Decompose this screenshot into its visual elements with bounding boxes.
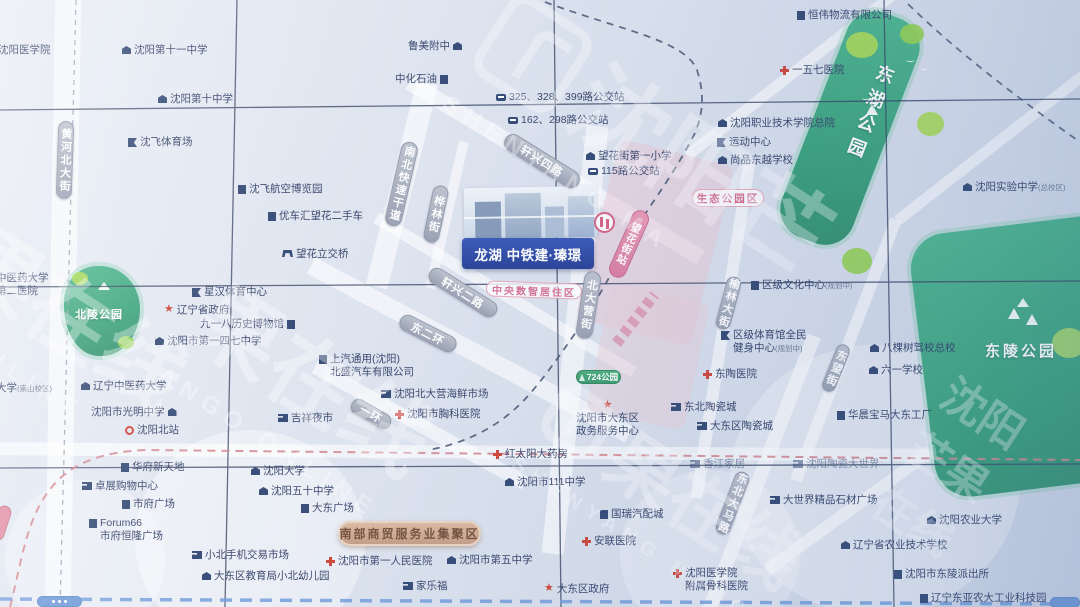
pine-tree-icon xyxy=(1026,314,1038,325)
school-icon xyxy=(447,556,456,564)
poi-label: 鲁美附中 xyxy=(408,40,450,53)
building-icon xyxy=(238,185,246,194)
pine-tree-icon xyxy=(1017,298,1029,307)
poi-label: 沈阳医学院 xyxy=(0,44,51,57)
dongling-park-label: 东陵公园 xyxy=(985,340,1057,361)
school-icon xyxy=(453,42,462,50)
map-poi: 优车汇望花二手车 xyxy=(268,210,363,223)
building-icon xyxy=(121,463,129,472)
map-poi: ★大东区政府 xyxy=(544,583,609,596)
watermark: 果在线 MANGO ONLINE xyxy=(0,140,214,463)
park-foliage xyxy=(846,32,878,58)
hospital-icon xyxy=(582,537,591,546)
school-icon xyxy=(158,95,167,103)
render-building xyxy=(545,207,564,238)
bird-icon xyxy=(920,66,927,70)
school-icon xyxy=(168,408,177,416)
road-ne-diagonal-2 xyxy=(894,56,1080,225)
map-poi: 沈阳医学院 xyxy=(0,44,51,57)
poi-label: 望花立交桥 xyxy=(296,248,349,261)
map-poi: 区级体育馆全民健身中心(规划中) xyxy=(721,329,807,355)
map-poi: 鲁美附中 xyxy=(408,40,462,53)
poi-label: 优车汇望花二手车 xyxy=(279,210,363,223)
poi-label: 沈阳第十一中学 xyxy=(134,44,208,57)
render-building xyxy=(474,202,501,239)
project-name-badge: 龙湖 中铁建·瑧璟 xyxy=(462,238,594,269)
pine-tree-icon xyxy=(1008,308,1020,319)
market-icon xyxy=(403,582,413,590)
poi-label: 沈阳第十中学 xyxy=(170,93,233,106)
poi-label: 沈飞体育场 xyxy=(140,136,193,149)
park-foliage xyxy=(900,24,924,44)
poi-label-suffix: (规划中) xyxy=(775,344,803,353)
poi-label-suffix: (规划中) xyxy=(825,281,853,290)
map-poi: 沈阳市第五中学 xyxy=(447,554,533,567)
poi-label: 家乐福 xyxy=(416,580,448,593)
building-icon xyxy=(440,75,448,84)
poi-label: 区级体育馆全民 xyxy=(733,329,807,342)
poi-label: 沈阳实验中学(总校区) xyxy=(975,181,1066,194)
zone-central-residential: 中央数智居住区 xyxy=(486,280,582,299)
poi-label: 沈飞航空博览园 xyxy=(249,183,323,196)
poi-label: 健身中心(规划中) xyxy=(733,342,807,355)
map-poi: 沈阳实验中学(总校区) xyxy=(963,181,1066,194)
illegible-road-label xyxy=(1050,597,1080,607)
map-board-photo: 东湖公园 东陵公园 北陵公园 生态公园区 中央数智居住区 南部商贸服务业集聚区 … xyxy=(0,0,1080,607)
sport-icon xyxy=(128,138,137,147)
school-icon xyxy=(963,183,972,191)
map-poi: 沈阳第十一中学 xyxy=(122,44,208,57)
bird-icon xyxy=(906,58,915,62)
zone-south-trade: 南部商贸服务业集聚区 xyxy=(338,521,481,546)
map-poi: 沈阳第十中学 xyxy=(158,93,233,106)
road-nanbei-expressway xyxy=(366,80,438,289)
map-poi: 沈飞体育场 xyxy=(128,136,193,149)
sport-icon xyxy=(192,288,201,297)
park-foliage xyxy=(842,248,872,274)
building-icon xyxy=(797,11,805,20)
school-icon xyxy=(122,46,131,54)
map-poi: 沈飞航空博览园 xyxy=(238,183,323,196)
bridge-icon xyxy=(282,250,293,257)
park-foliage xyxy=(917,112,944,136)
star-icon: ★ xyxy=(544,583,554,593)
poi-label: 大东区政府 xyxy=(557,583,610,596)
map-poi: 家乐福 xyxy=(403,580,448,593)
poi-label: 沈阳市第五中学 xyxy=(459,554,533,567)
poi-label-suffix: (总校区) xyxy=(1038,183,1066,192)
illegible-road-label xyxy=(37,596,82,607)
city-block xyxy=(5,480,165,607)
building-icon xyxy=(268,212,276,221)
